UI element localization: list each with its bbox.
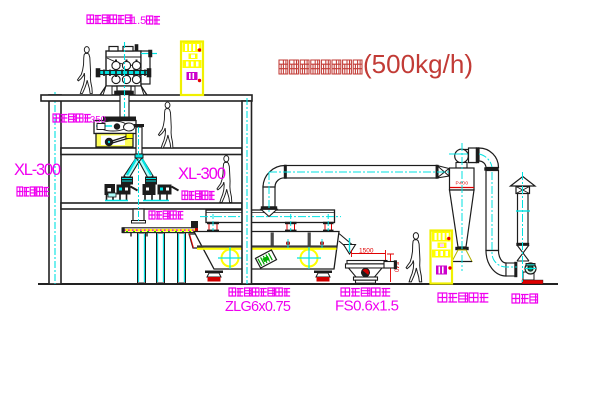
svg-text:1500: 1500 xyxy=(359,248,374,255)
svg-text:350: 350 xyxy=(90,115,106,126)
svg-text:FS0.6x1.5: FS0.6x1.5 xyxy=(335,298,399,315)
svg-text:XL-300: XL-300 xyxy=(14,161,61,179)
svg-text:(500kg/h): (500kg/h) xyxy=(363,49,473,79)
svg-text:XL-300: XL-300 xyxy=(178,165,226,183)
svg-text:1.5: 1.5 xyxy=(131,15,146,27)
svg-text:ZLG6x0.75: ZLG6x0.75 xyxy=(225,299,291,315)
